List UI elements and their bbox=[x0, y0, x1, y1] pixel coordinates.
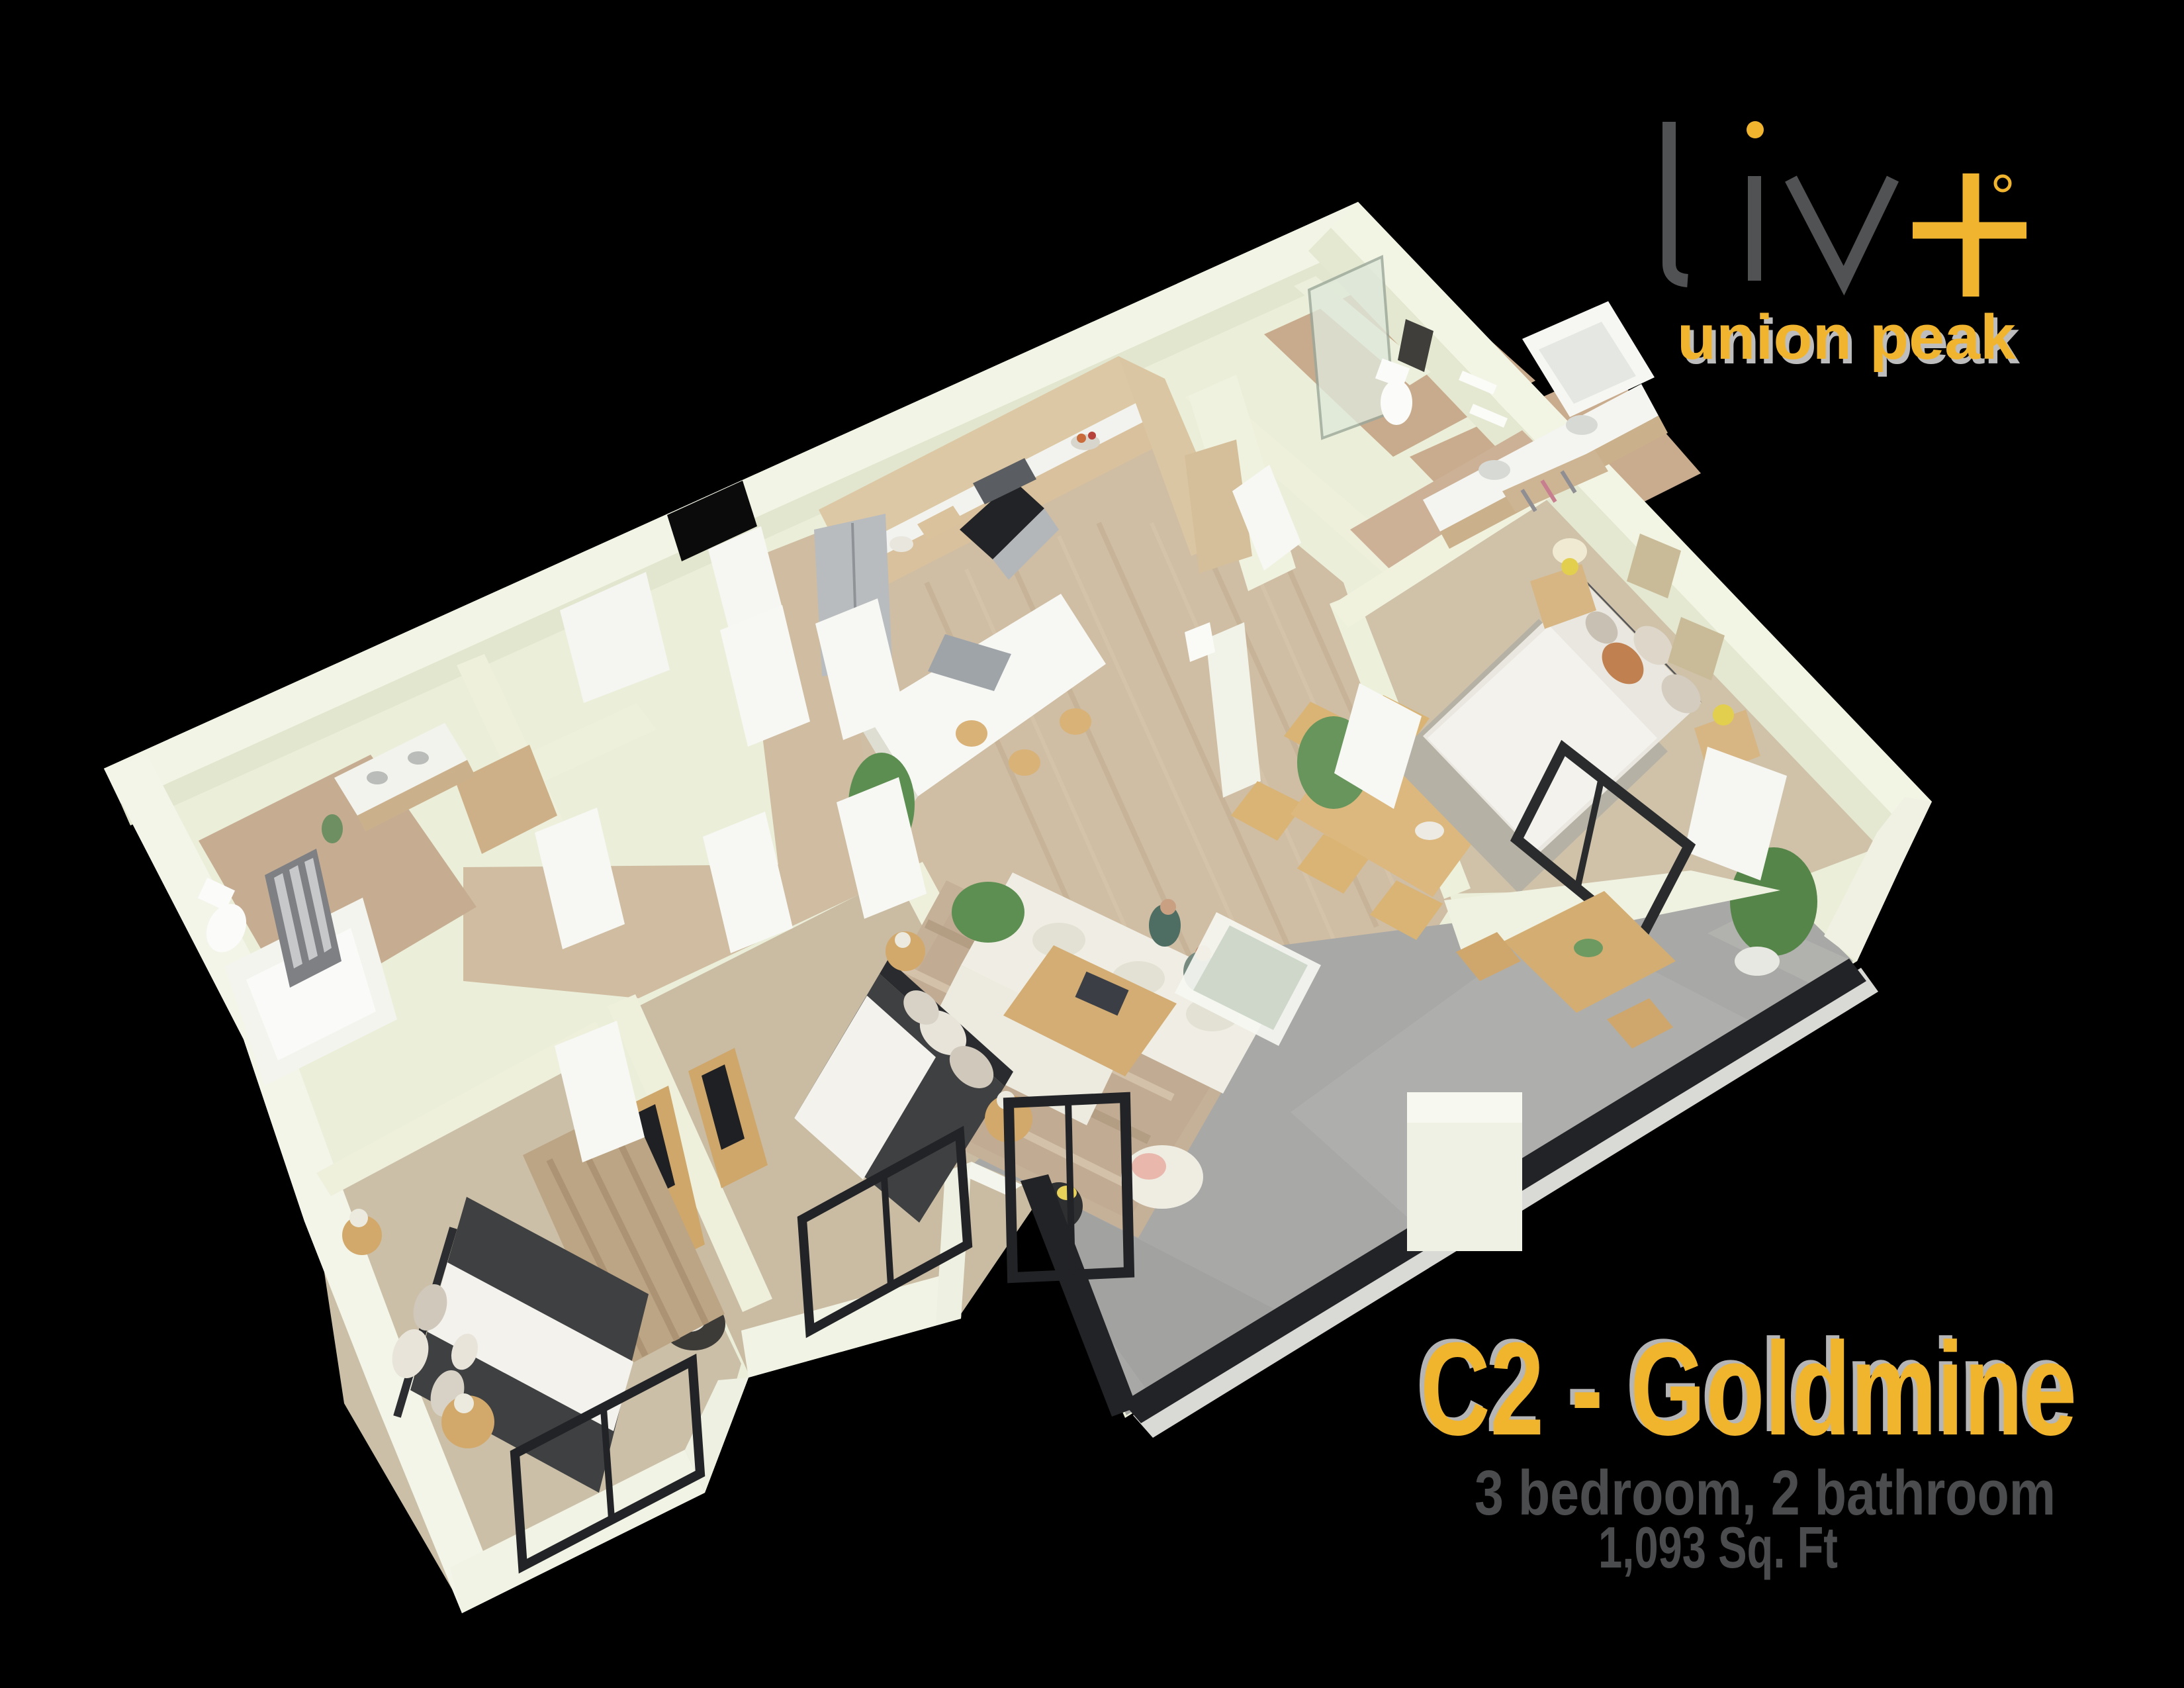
svg-text:1,093 Sq. Ft: 1,093 Sq. Ft bbox=[1598, 1515, 1838, 1580]
svg-text:C2 - Goldmine: C2 - Goldmine bbox=[1420, 1315, 2077, 1463]
svg-text:union peak: union peak bbox=[1677, 302, 2017, 373]
